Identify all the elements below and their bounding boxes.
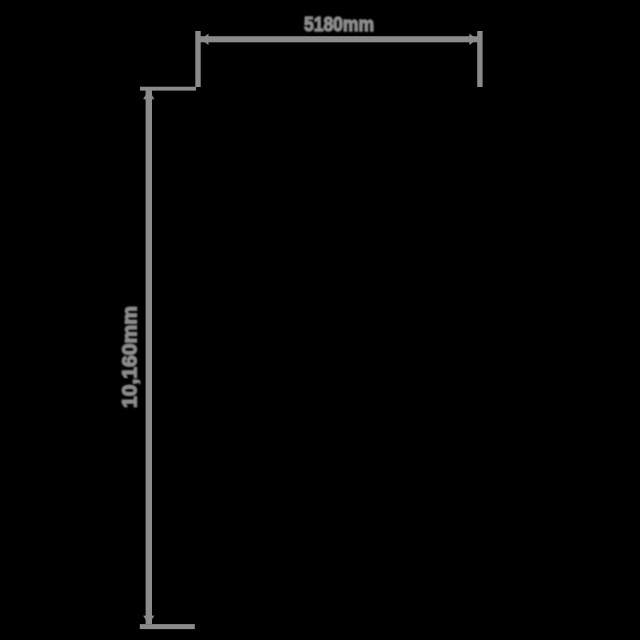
svg-text:10,160mm: 10,160mm	[119, 306, 141, 408]
svg-text:5180mm: 5180mm	[304, 14, 374, 36]
